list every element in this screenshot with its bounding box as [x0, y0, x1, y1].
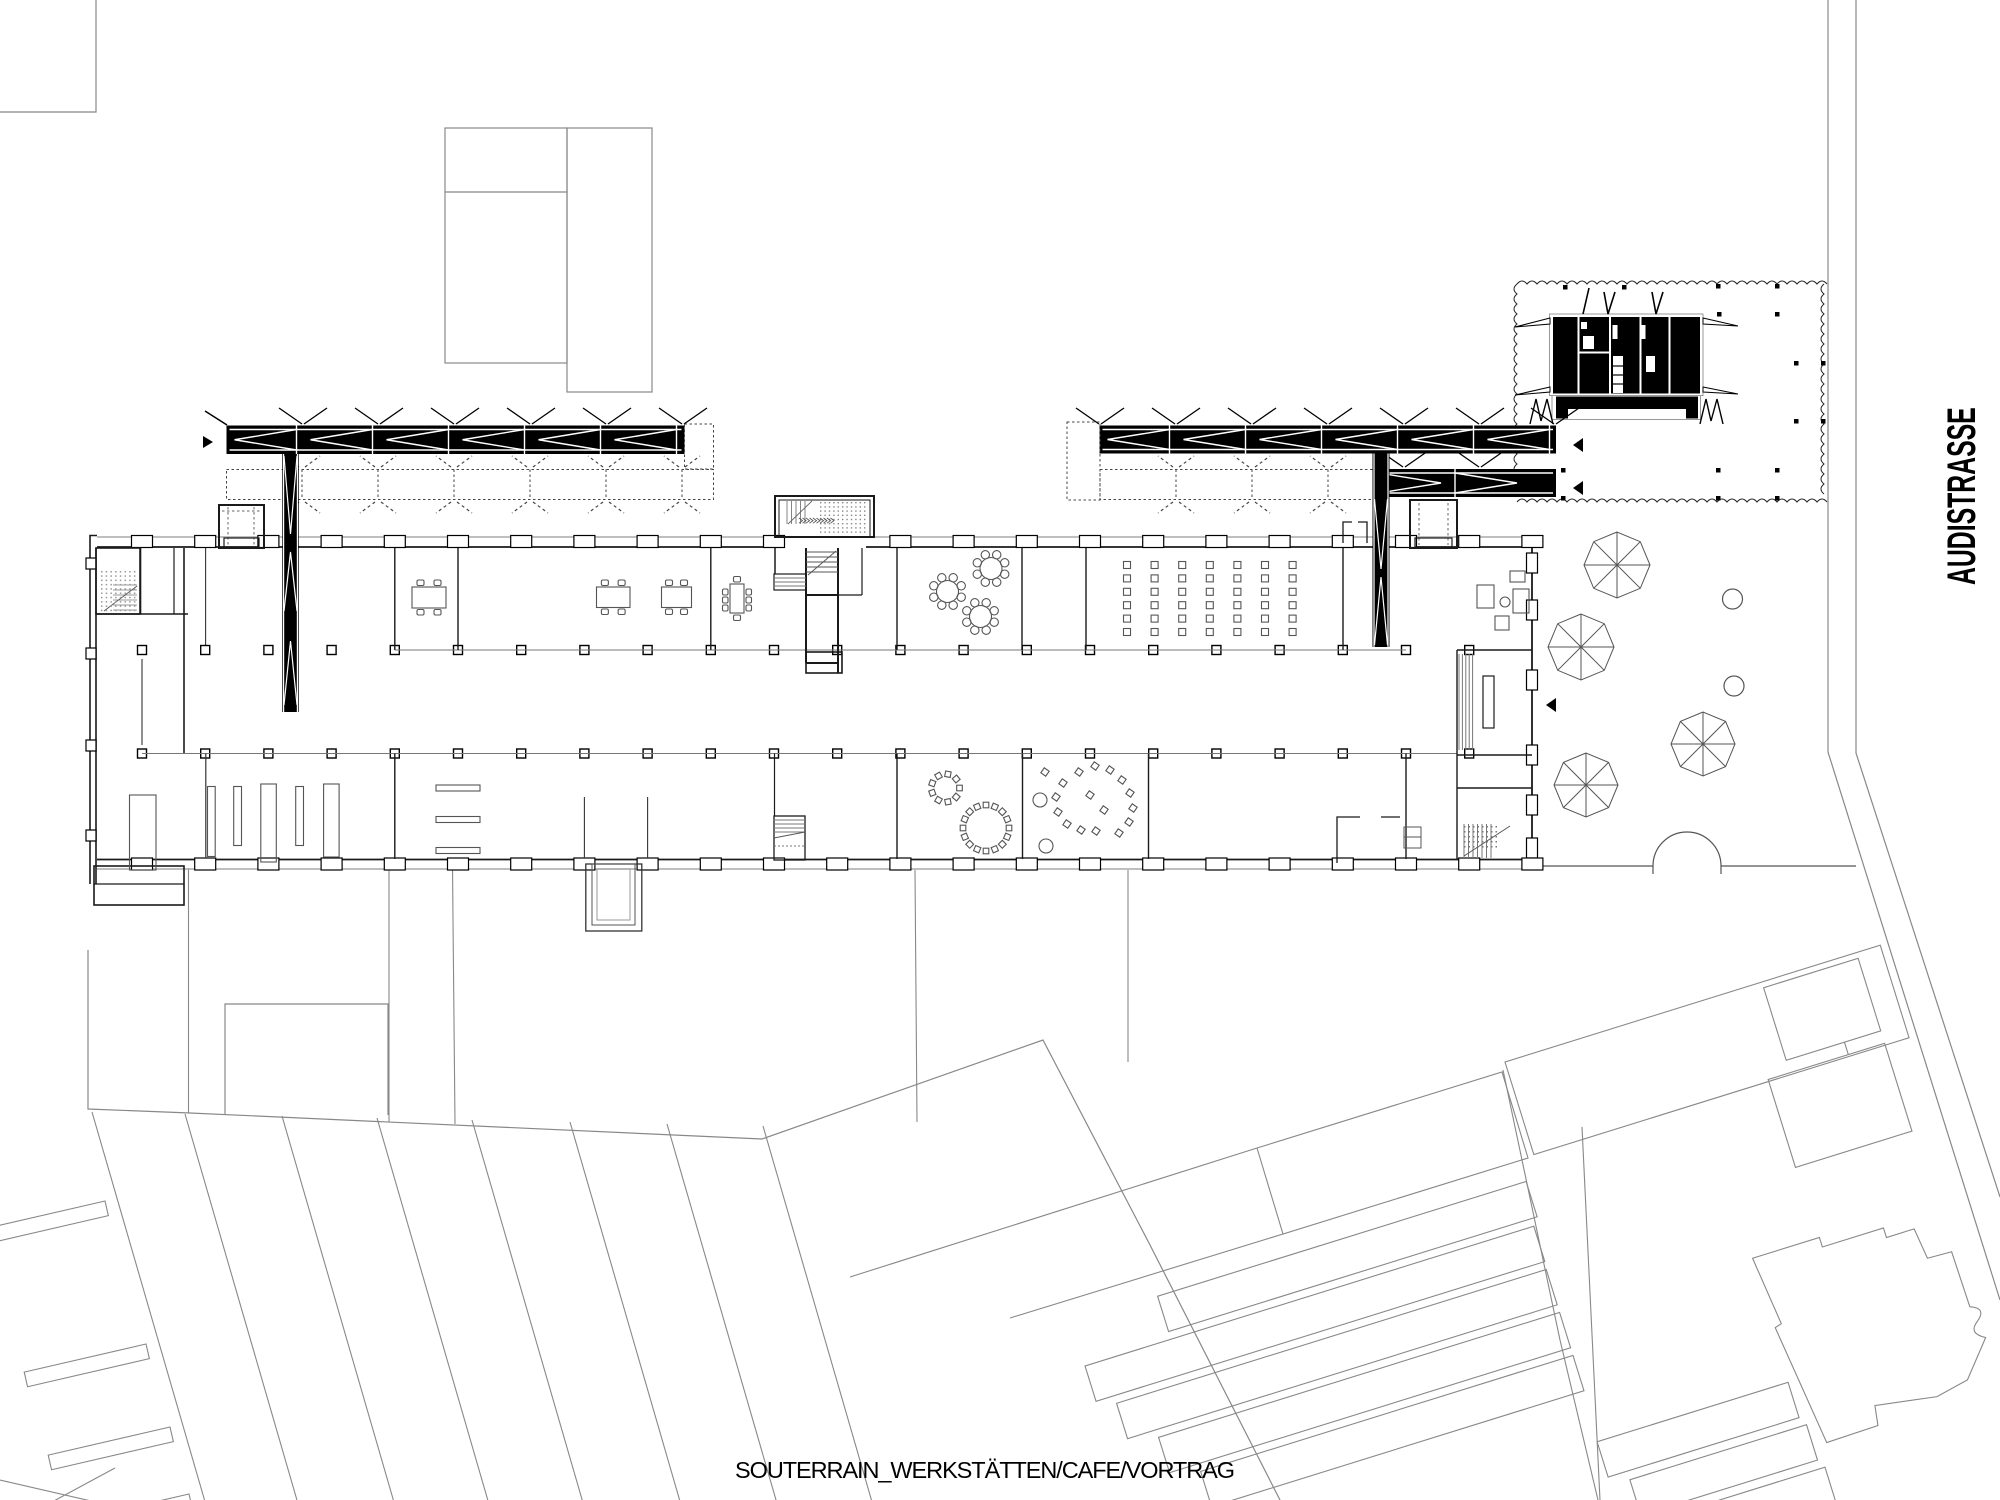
svg-text:AUDISTRASSE: AUDISTRASSE [1940, 407, 1984, 585]
svg-text:SOUTERRAIN_WERKSTÄTTEN/CAFE/VO: SOUTERRAIN_WERKSTÄTTEN/CAFE/VORTRAG [735, 1457, 1235, 1483]
